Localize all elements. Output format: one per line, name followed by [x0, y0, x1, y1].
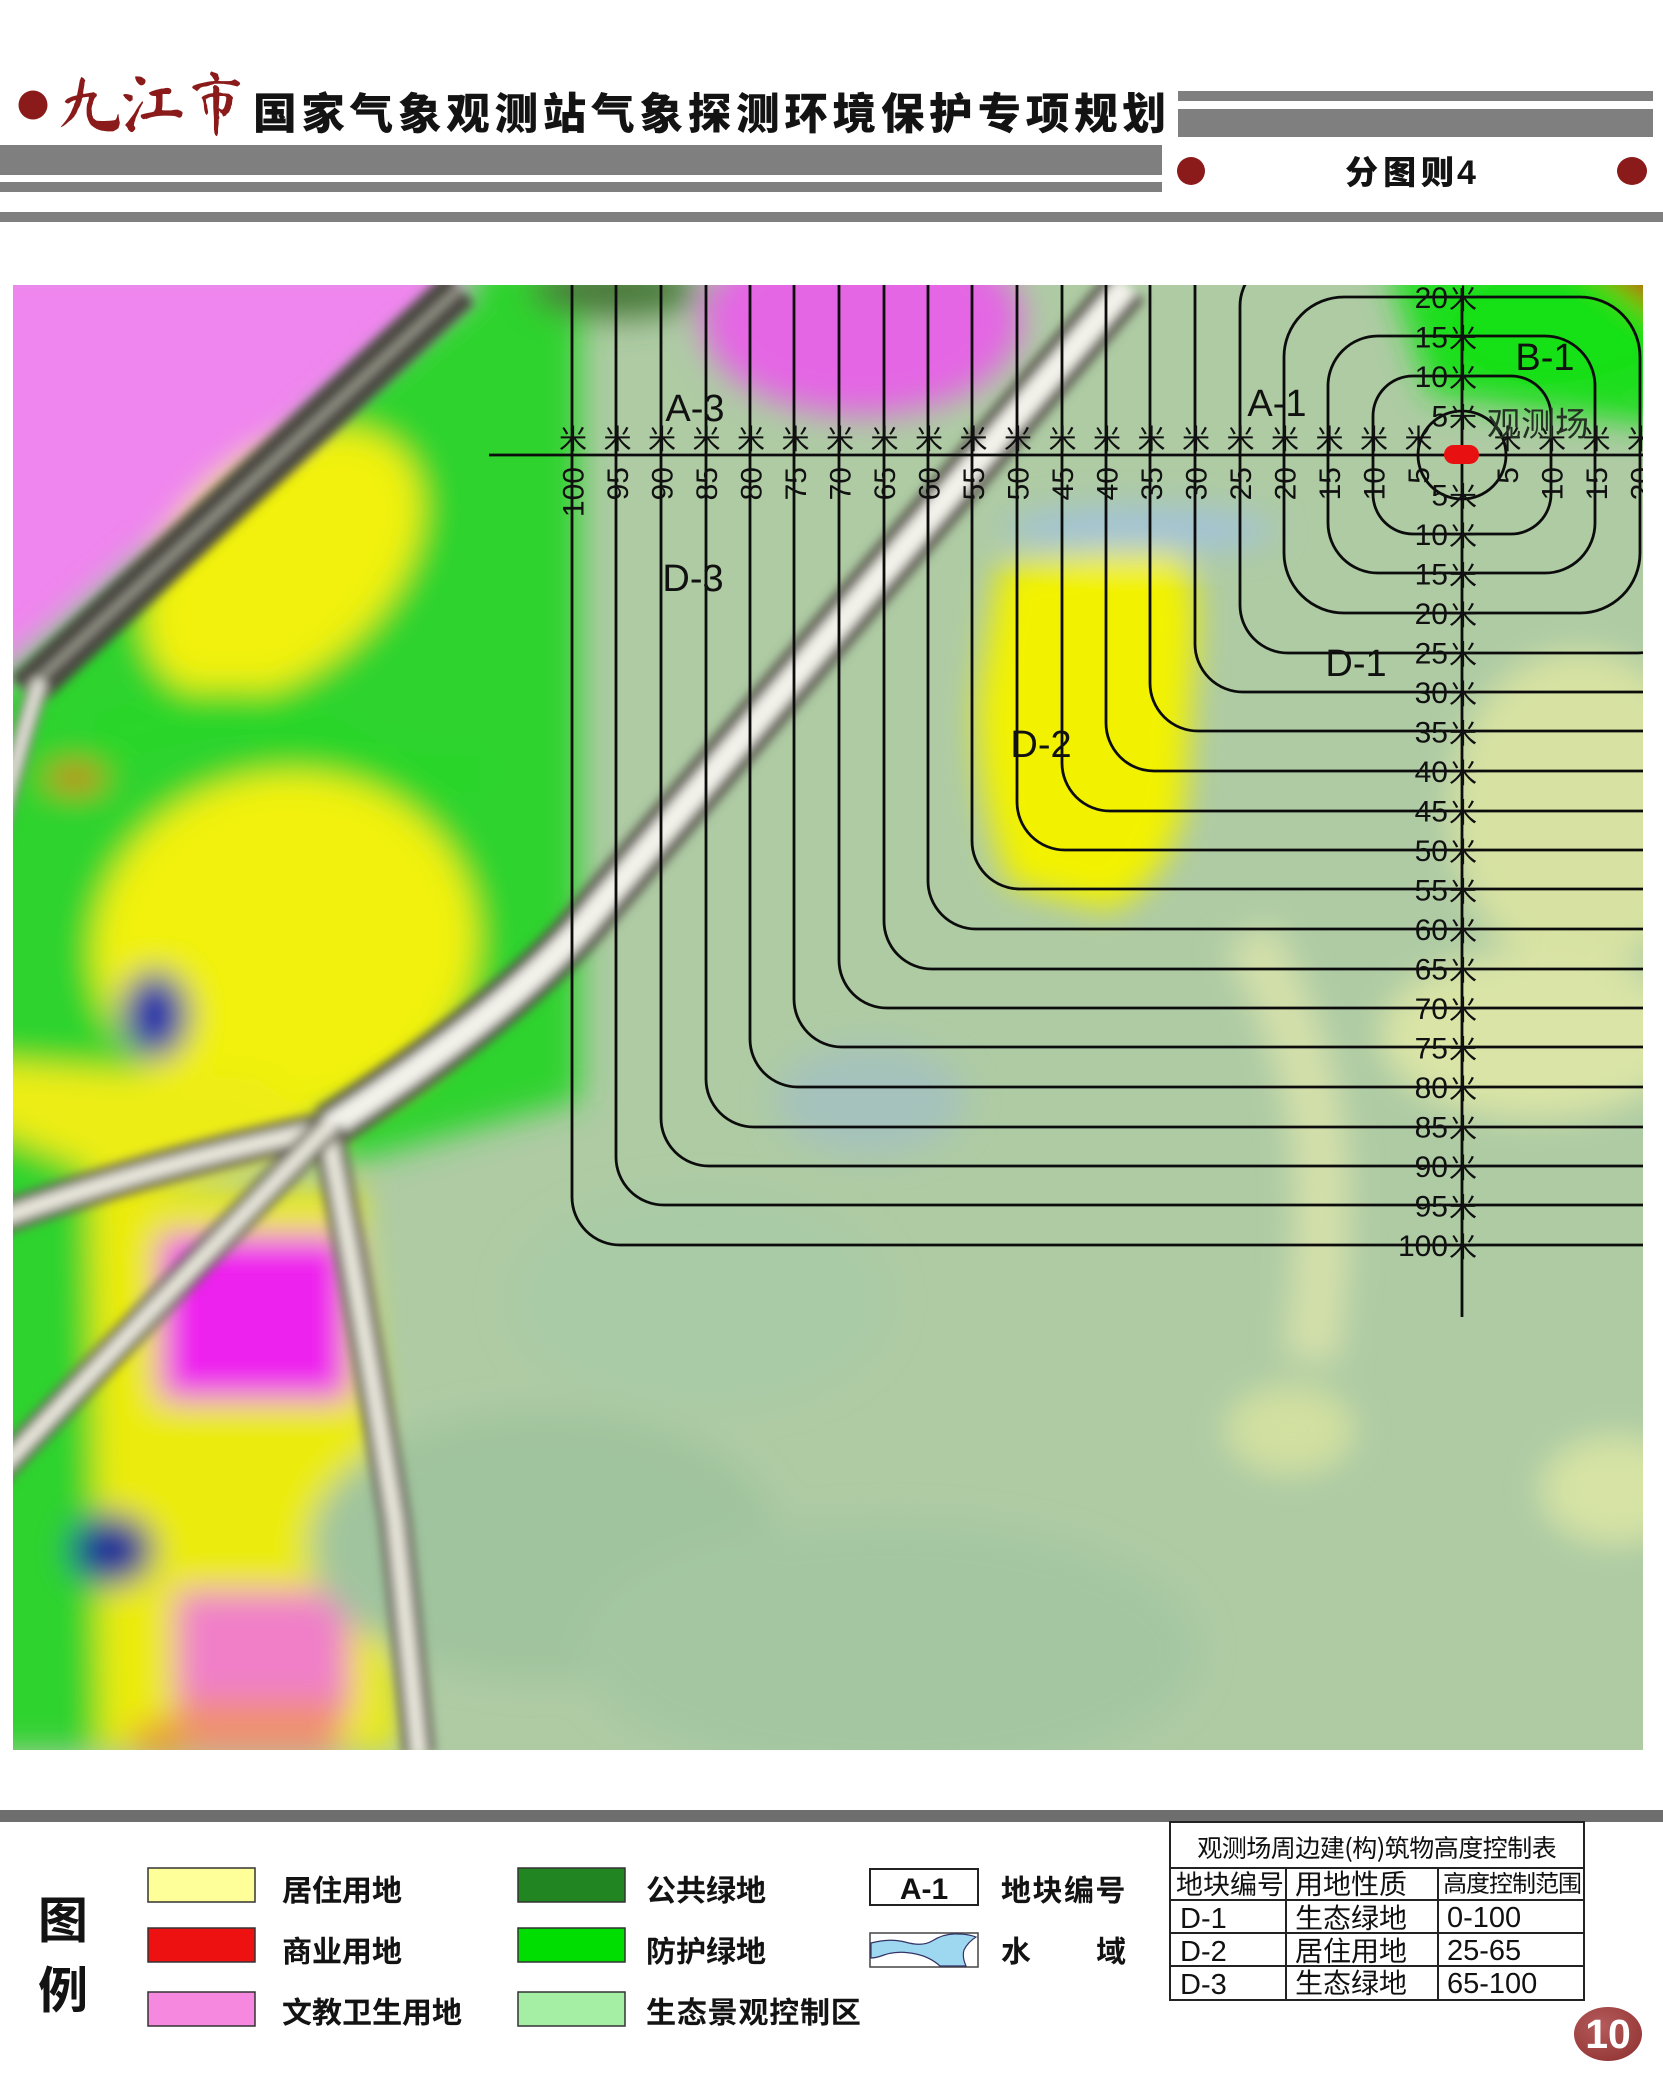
- svg-text:15: 15: [1581, 467, 1614, 500]
- svg-text:25-65: 25-65: [1447, 1935, 1521, 1967]
- svg-text:55: 55: [958, 467, 991, 500]
- svg-text:95: 95: [1415, 1191, 1448, 1224]
- svg-text:50: 50: [1415, 835, 1448, 868]
- svg-text:5: 5: [1492, 467, 1525, 484]
- svg-text:80: 80: [1415, 1072, 1448, 1105]
- svg-text:15: 15: [1415, 322, 1448, 355]
- svg-text:15: 15: [1415, 559, 1448, 592]
- svg-text:25: 25: [1225, 467, 1258, 500]
- svg-text:15: 15: [1314, 467, 1347, 500]
- svg-text:D-1: D-1: [1325, 643, 1386, 685]
- svg-text:B-1: B-1: [1515, 337, 1574, 379]
- svg-text:10: 10: [1585, 2011, 1631, 2057]
- svg-text:85: 85: [1415, 1112, 1448, 1145]
- svg-text:20: 20: [1415, 598, 1448, 631]
- svg-text:A-1: A-1: [900, 1873, 948, 1906]
- svg-text:45: 45: [1047, 467, 1080, 500]
- svg-text:D-2: D-2: [1010, 724, 1071, 766]
- svg-text:75: 75: [1415, 1033, 1448, 1066]
- svg-text:D-3: D-3: [1180, 1969, 1227, 2001]
- svg-text:35: 35: [1136, 467, 1169, 500]
- svg-text:60: 60: [1415, 914, 1448, 947]
- svg-text:10: 10: [1359, 467, 1392, 500]
- svg-text:10: 10: [1415, 361, 1448, 394]
- svg-text:75: 75: [780, 467, 813, 500]
- svg-text:80: 80: [736, 467, 769, 500]
- svg-text:40: 40: [1415, 756, 1448, 789]
- svg-text:90: 90: [1415, 1151, 1448, 1184]
- svg-text:20: 20: [1270, 467, 1303, 500]
- svg-text:40: 40: [1092, 467, 1125, 500]
- svg-text:0-100: 0-100: [1447, 1902, 1521, 1934]
- svg-text:45: 45: [1415, 796, 1448, 829]
- svg-text:65-100: 65-100: [1447, 1968, 1537, 2000]
- svg-text:20: 20: [1415, 282, 1448, 315]
- svg-text:35: 35: [1415, 717, 1448, 750]
- svg-text:D-3: D-3: [662, 558, 723, 600]
- svg-text:100: 100: [1398, 1230, 1448, 1263]
- svg-text:65: 65: [869, 467, 902, 500]
- svg-text:50: 50: [1003, 467, 1036, 500]
- svg-text:70: 70: [825, 467, 858, 500]
- svg-text:4: 4: [1457, 154, 1476, 192]
- svg-text:10: 10: [1537, 467, 1570, 500]
- svg-text:85: 85: [691, 467, 724, 500]
- svg-text:D-2: D-2: [1180, 1936, 1227, 1968]
- svg-text:5: 5: [1431, 401, 1448, 434]
- svg-text:D-1: D-1: [1180, 1903, 1227, 1935]
- svg-text:55: 55: [1415, 875, 1448, 908]
- svg-text:100: 100: [558, 467, 591, 517]
- svg-text:65: 65: [1415, 954, 1448, 987]
- svg-text:30: 30: [1181, 467, 1214, 500]
- svg-text:30: 30: [1415, 677, 1448, 710]
- svg-text:A-3: A-3: [665, 388, 724, 430]
- svg-text:60: 60: [914, 467, 947, 500]
- svg-text:5: 5: [1431, 480, 1448, 513]
- svg-text:10: 10: [1415, 519, 1448, 552]
- svg-text:95: 95: [602, 467, 635, 500]
- svg-text:70: 70: [1415, 993, 1448, 1026]
- svg-text:90: 90: [647, 467, 680, 500]
- svg-text:25: 25: [1415, 638, 1448, 671]
- svg-text:A-1: A-1: [1247, 383, 1306, 425]
